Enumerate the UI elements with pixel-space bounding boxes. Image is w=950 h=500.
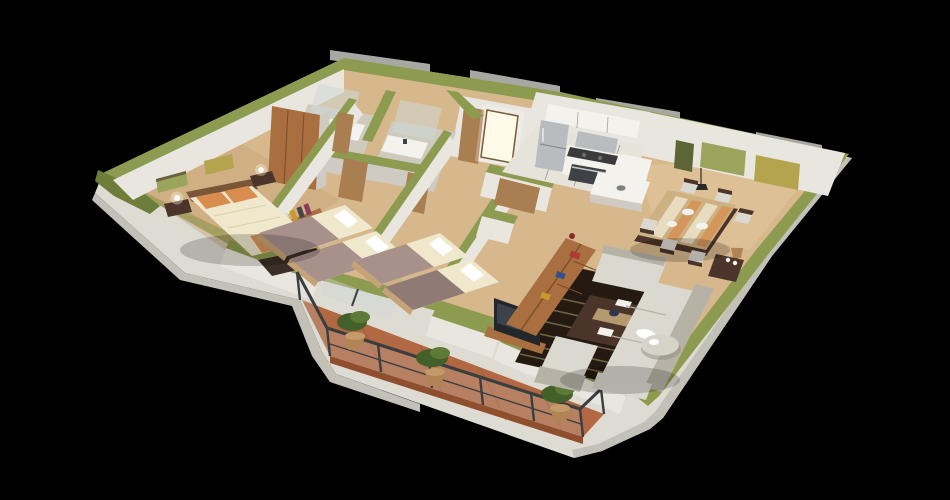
floorplan-stage bbox=[0, 0, 950, 500]
fridge bbox=[535, 120, 569, 172]
table-lamp-right bbox=[258, 167, 264, 173]
decor bbox=[726, 258, 730, 262]
decor bbox=[733, 261, 737, 265]
plate bbox=[696, 223, 708, 230]
plate bbox=[667, 221, 677, 227]
bath2-faucet bbox=[403, 139, 407, 144]
pot-rim bbox=[345, 332, 365, 340]
shadow bbox=[630, 238, 730, 262]
small-wall-picture bbox=[674, 140, 694, 172]
shadow bbox=[180, 234, 320, 266]
lamp-shade bbox=[731, 248, 743, 258]
shadow bbox=[560, 366, 680, 394]
blue-bowl bbox=[609, 310, 619, 317]
burner bbox=[598, 156, 602, 160]
sink-basin bbox=[617, 185, 626, 191]
pot-rim bbox=[425, 368, 445, 376]
foliage bbox=[430, 347, 450, 359]
table-top bbox=[641, 335, 679, 356]
table-lamp-left bbox=[174, 195, 180, 201]
cup bbox=[649, 339, 659, 345]
foliage bbox=[350, 311, 370, 323]
plate bbox=[682, 209, 694, 216]
apartment-3d-floorplan bbox=[0, 0, 950, 500]
burner bbox=[582, 153, 586, 157]
pot-rim bbox=[550, 404, 570, 412]
decor-vase bbox=[569, 233, 575, 239]
